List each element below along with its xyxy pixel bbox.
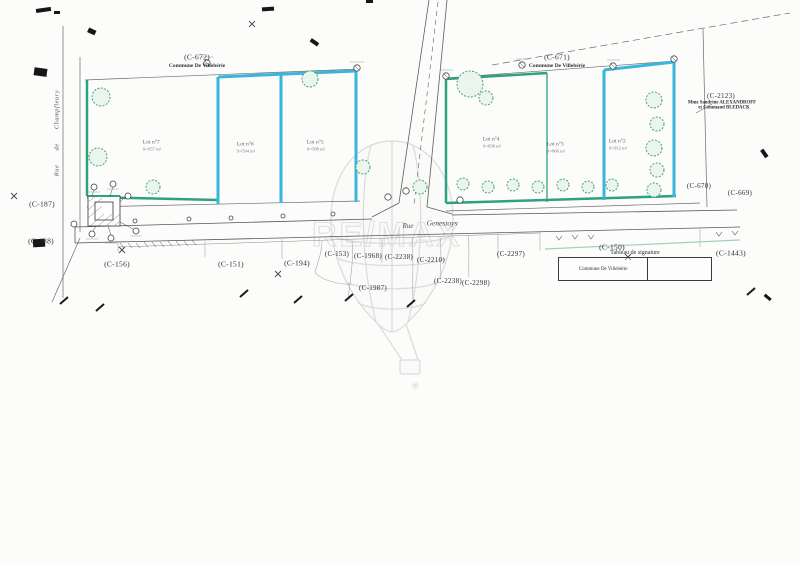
lot-label: Lot n°2 S=912 m² (609, 140, 627, 151)
parcel-ref-c671: (C-671) (544, 53, 570, 62)
parcel-ref-label: (C-188) (28, 237, 54, 246)
parcel-ref-label: (C-153) (325, 250, 349, 258)
owner-label-c671: Commune De Villebérie (529, 63, 585, 69)
lot-label: Lot n°7 S=957 m² (143, 141, 161, 152)
lot-area: S=588 m² (307, 146, 325, 152)
lot-name: Lot n°6 (237, 143, 255, 149)
parcel-ref-label: (C-194) (284, 259, 310, 268)
parcel-ref-label: (C-2298) (462, 279, 490, 287)
plan-linework: RE/MAX ® (0, 0, 800, 565)
parcel-ref-label: (C-1443) (716, 249, 746, 258)
parcel-ref-label: (C-1987) (359, 284, 387, 292)
lot-name: Lot n°3 (547, 143, 565, 149)
lot-area: S=866 m² (547, 148, 565, 154)
lot-label: Lot n°4 S=838 m² (483, 138, 501, 149)
parcel-ref-label: (C-2297) (497, 250, 525, 258)
signature-table: Tableau de signature Commune De Villebér… (558, 250, 712, 281)
lot-label: Lot n°3 S=866 m² (547, 143, 565, 154)
parcel-ref-label: (C-2210) (417, 256, 445, 264)
owner-label-c672: Commune De Villebérie (169, 63, 225, 69)
lot-label: Lot n°6 S=594 m² (237, 143, 255, 154)
parcel-ref-label: (C-1968) (354, 252, 382, 260)
parcel-ref-label: (C-151) (218, 260, 244, 269)
parcel-borders-left-block (87, 71, 356, 204)
signature-table-grid: Commune De Villebérie (558, 257, 712, 281)
parcel-ref-c2123: (C-2123) (707, 92, 735, 100)
lot-name: Lot n°7 (143, 141, 161, 147)
street-name: Genestoys (427, 219, 458, 228)
lot-name: Lot n°4 (483, 138, 501, 144)
parcel-ref-label: (C-2238) (385, 253, 413, 261)
scanned-cadastral-plan: RE/MAX ® (0, 0, 800, 565)
signature-table-cell-empty (648, 258, 711, 280)
lot-name: Lot n°2 (609, 140, 627, 146)
lot-label: Lot n°5 S=588 m² (307, 141, 325, 152)
parcel-ref-label: (C-156) (104, 260, 130, 269)
lot-area: S=838 m² (483, 143, 501, 149)
parcel-ref-label: (C-669) (728, 189, 752, 197)
parcel-ref-label: (C-670) (687, 182, 711, 190)
street-name-prefix: Rue (403, 222, 414, 230)
parcel-ref-c672: (C-672) (184, 53, 210, 62)
watermark-registered-mark: ® (412, 381, 419, 391)
lot-name: Lot n°5 (307, 141, 325, 147)
parcel-ref-label: (C-2238) (434, 277, 462, 285)
lot-area: S=957 m² (143, 146, 161, 152)
lot-area: S=594 m² (237, 148, 255, 154)
signature-table-title: Tableau de signature (558, 250, 712, 256)
street-name-vertical: Rue de Champfleury (54, 90, 61, 176)
signature-table-cell-commune: Commune De Villebérie (559, 258, 648, 280)
owner-label-c2123-line2: et Command BLEDACK (698, 106, 749, 111)
parcel-ref-label: (C-187) (29, 200, 55, 209)
lot-area: S=912 m² (609, 145, 627, 151)
